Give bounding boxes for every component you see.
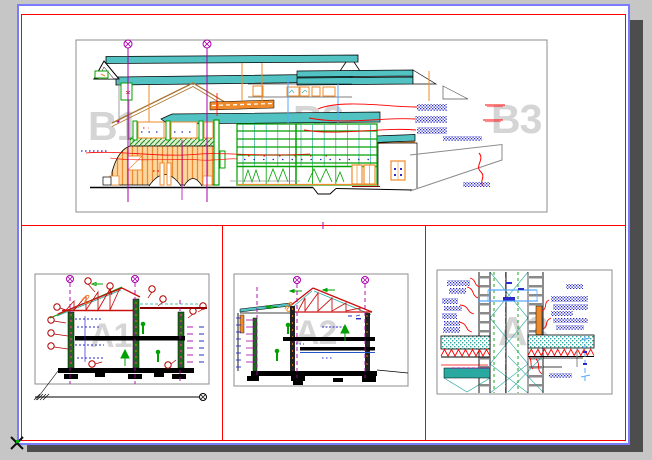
cad-canvas: B1 B2 B3 (0, 0, 652, 460)
viewport-detail-a3: A3 (437, 270, 612, 394)
canopy (210, 100, 274, 110)
watermark-a2: A2 (295, 314, 337, 352)
viewport-section-a1: A1 (34, 274, 209, 401)
cad-viewport: B1 B2 B3 (0, 0, 652, 460)
viewport-section-a2: A2 (234, 274, 408, 386)
a3-orange-strip (536, 306, 542, 335)
viewport-elevation: B1 B2 B3 (76, 40, 547, 212)
watermark-b3: B3 (491, 96, 542, 142)
